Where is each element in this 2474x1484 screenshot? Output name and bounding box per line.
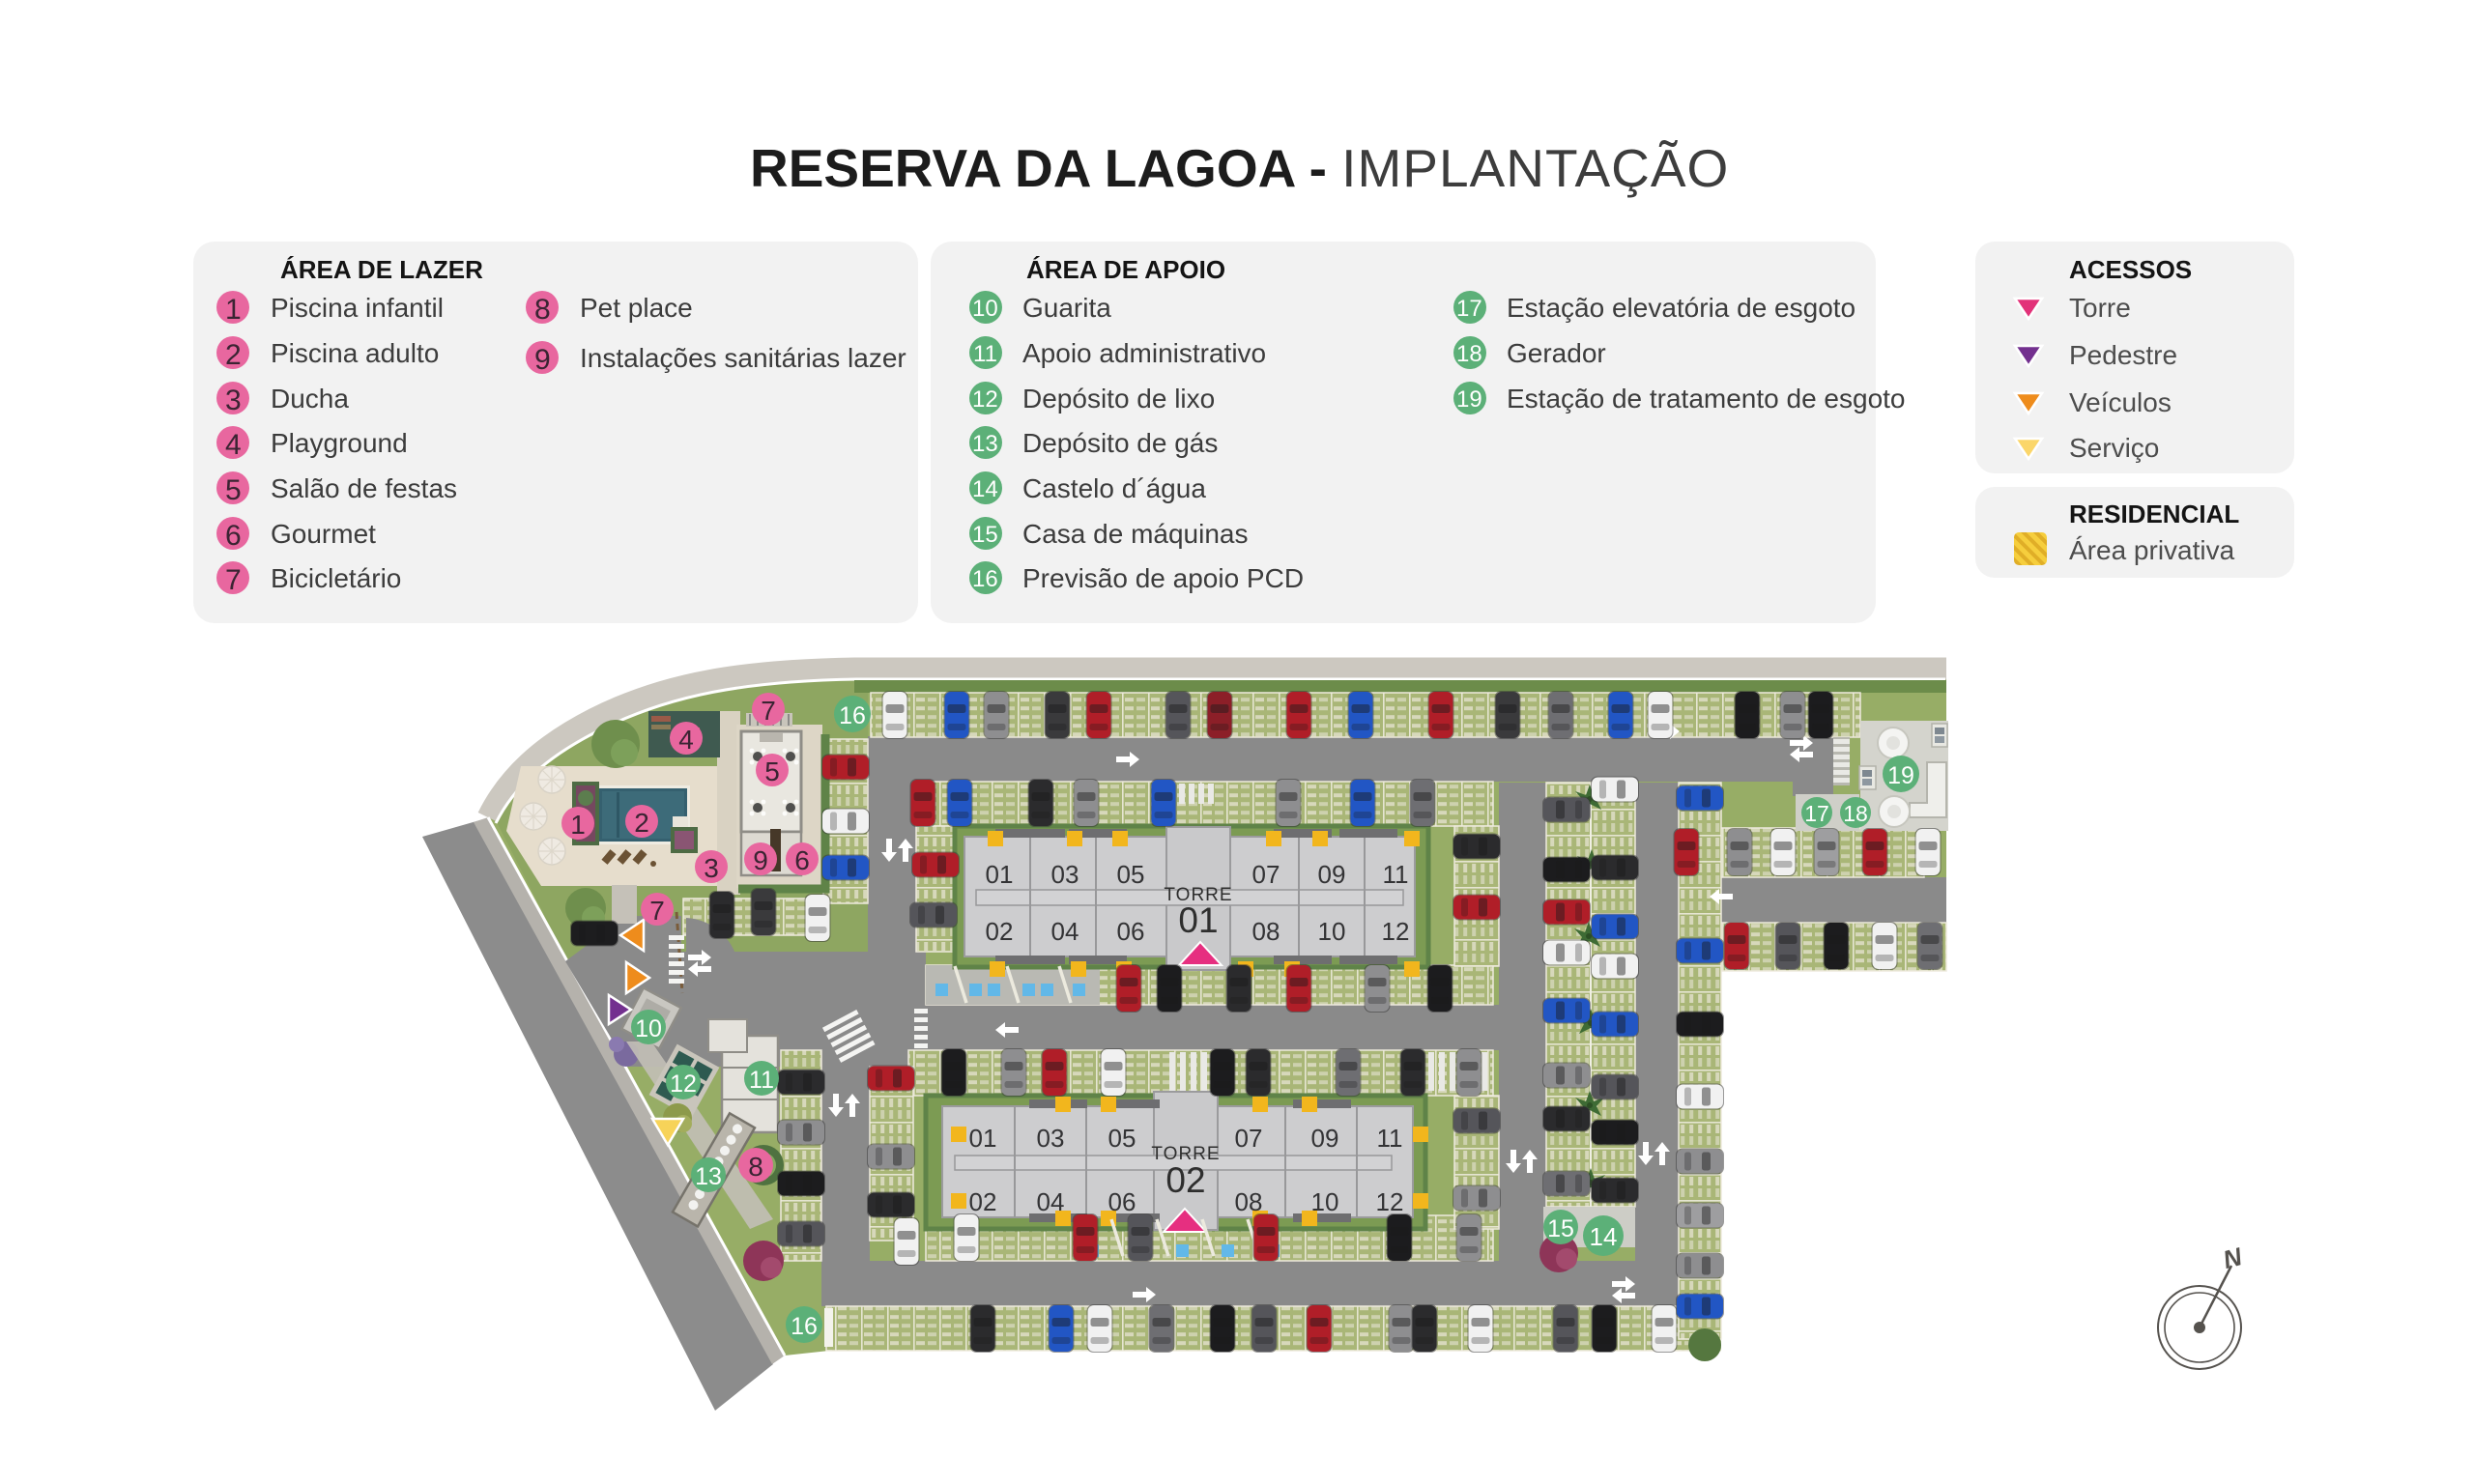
svg-text:04: 04: [1051, 917, 1079, 946]
svg-text:06: 06: [1108, 1187, 1136, 1216]
svg-text:Pedestre: Pedestre: [2069, 340, 2177, 370]
svg-text:Casa de máquinas: Casa de máquinas: [1022, 519, 1248, 549]
svg-text:ACESSOS: ACESSOS: [2069, 255, 2192, 284]
svg-text:07: 07: [1252, 860, 1280, 889]
svg-text:Estação de tratamento de esgot: Estação de tratamento de esgoto: [1507, 384, 1906, 414]
svg-text:Gourmet: Gourmet: [271, 519, 376, 549]
svg-text:14: 14: [1590, 1222, 1618, 1251]
svg-text:7: 7: [649, 896, 665, 926]
svg-text:12: 12: [670, 1070, 697, 1098]
svg-text:09: 09: [1311, 1124, 1339, 1153]
svg-text:1: 1: [225, 294, 242, 326]
svg-text:12: 12: [972, 386, 998, 413]
svg-text:Guarita: Guarita: [1022, 293, 1111, 323]
svg-text:Depósito de gás: Depósito de gás: [1022, 428, 1218, 458]
svg-text:10: 10: [972, 296, 998, 322]
svg-text:Pet place: Pet place: [580, 293, 693, 323]
svg-text:Salão de festas: Salão de festas: [271, 473, 457, 503]
svg-text:Piscina adulto: Piscina adulto: [271, 338, 439, 368]
svg-text:05: 05: [1117, 860, 1145, 889]
svg-text:17: 17: [1456, 296, 1482, 322]
svg-text:RESIDENCIAL: RESIDENCIAL: [2069, 499, 2239, 528]
svg-text:16: 16: [839, 702, 866, 729]
svg-text:18: 18: [1456, 341, 1482, 367]
svg-text:04: 04: [1037, 1187, 1065, 1216]
svg-text:9: 9: [534, 344, 551, 376]
svg-text:5: 5: [764, 756, 780, 786]
svg-text:02: 02: [969, 1187, 997, 1216]
svg-text:Bicicletário: Bicicletário: [271, 563, 401, 593]
svg-text:1: 1: [570, 810, 586, 840]
svg-text:ÁREA DE APOIO: ÁREA DE APOIO: [1026, 255, 1225, 284]
svg-text:19: 19: [1456, 386, 1482, 413]
svg-text:Piscina infantil: Piscina infantil: [271, 293, 444, 323]
svg-text:Área privativa: Área privativa: [2069, 535, 2235, 565]
svg-text:09: 09: [1318, 860, 1346, 889]
svg-text:Depósito de lixo: Depósito de lixo: [1022, 384, 1215, 414]
svg-text:10: 10: [1311, 1187, 1339, 1216]
svg-text:5: 5: [225, 474, 242, 506]
svg-text:7: 7: [225, 564, 242, 596]
svg-text:15: 15: [1547, 1215, 1574, 1242]
svg-text:Serviço: Serviço: [2069, 433, 2159, 463]
svg-text:Veículos: Veículos: [2069, 387, 2172, 417]
svg-text:01: 01: [986, 860, 1014, 889]
svg-text:08: 08: [1235, 1187, 1263, 1216]
svg-text:ÁREA DE LAZER: ÁREA DE LAZER: [280, 255, 483, 284]
svg-text:19: 19: [1887, 762, 1914, 789]
svg-text:16: 16: [791, 1313, 818, 1340]
svg-text:9: 9: [753, 845, 768, 875]
svg-text:Ducha: Ducha: [271, 384, 349, 414]
svg-text:03: 03: [1037, 1124, 1065, 1153]
svg-text:8: 8: [534, 294, 551, 326]
svg-text:13: 13: [972, 431, 998, 457]
svg-text:Playground: Playground: [271, 428, 408, 458]
svg-text:15: 15: [972, 522, 998, 548]
svg-text:3: 3: [225, 385, 242, 416]
svg-text:07: 07: [1235, 1124, 1263, 1153]
svg-text:01: 01: [969, 1124, 997, 1153]
svg-text:Estação elevatória de esgoto: Estação elevatória de esgoto: [1507, 293, 1855, 323]
svg-text:10: 10: [1318, 917, 1346, 946]
svg-text:11: 11: [1377, 1124, 1403, 1153]
svg-text:3: 3: [704, 853, 719, 883]
svg-text:17: 17: [1804, 801, 1829, 826]
svg-text:Apoio administrativo: Apoio administrativo: [1022, 338, 1266, 368]
svg-text:12: 12: [1382, 917, 1410, 946]
svg-text:02: 02: [1165, 1160, 1205, 1200]
svg-text:03: 03: [1051, 860, 1079, 889]
svg-text:13: 13: [695, 1163, 722, 1190]
svg-text:11: 11: [749, 1067, 774, 1094]
svg-text:01: 01: [1178, 900, 1218, 940]
svg-text:12: 12: [1376, 1187, 1404, 1216]
svg-text:7: 7: [761, 696, 776, 726]
svg-text:11: 11: [973, 341, 997, 367]
svg-text:06: 06: [1117, 917, 1145, 946]
svg-text:08: 08: [1252, 917, 1280, 946]
svg-text:8: 8: [748, 1152, 763, 1182]
svg-text:11: 11: [1383, 860, 1409, 889]
svg-text:6: 6: [794, 845, 810, 875]
svg-text:RESERVA DA LAGOA - IMPLANTAÇÃO: RESERVA DA LAGOA - IMPLANTAÇÃO: [750, 138, 1729, 198]
svg-text:Gerador: Gerador: [1507, 338, 1606, 368]
svg-text:6: 6: [225, 520, 242, 552]
svg-text:Castelo d´água: Castelo d´água: [1022, 473, 1206, 503]
svg-text:2: 2: [225, 339, 242, 371]
svg-text:Previsão de apoio PCD: Previsão de apoio PCD: [1022, 563, 1304, 593]
svg-text:18: 18: [1843, 801, 1868, 826]
svg-text:4: 4: [225, 429, 242, 461]
svg-text:Torre: Torre: [2069, 293, 2131, 323]
svg-text:16: 16: [972, 566, 998, 592]
svg-text:Instalações sanitárias lazer: Instalações sanitárias lazer: [580, 343, 906, 373]
svg-text:4: 4: [678, 725, 694, 755]
svg-text:10: 10: [635, 1015, 662, 1042]
svg-text:2: 2: [634, 808, 649, 838]
svg-text:14: 14: [972, 476, 998, 502]
svg-text:02: 02: [986, 917, 1014, 946]
svg-text:05: 05: [1108, 1124, 1136, 1153]
